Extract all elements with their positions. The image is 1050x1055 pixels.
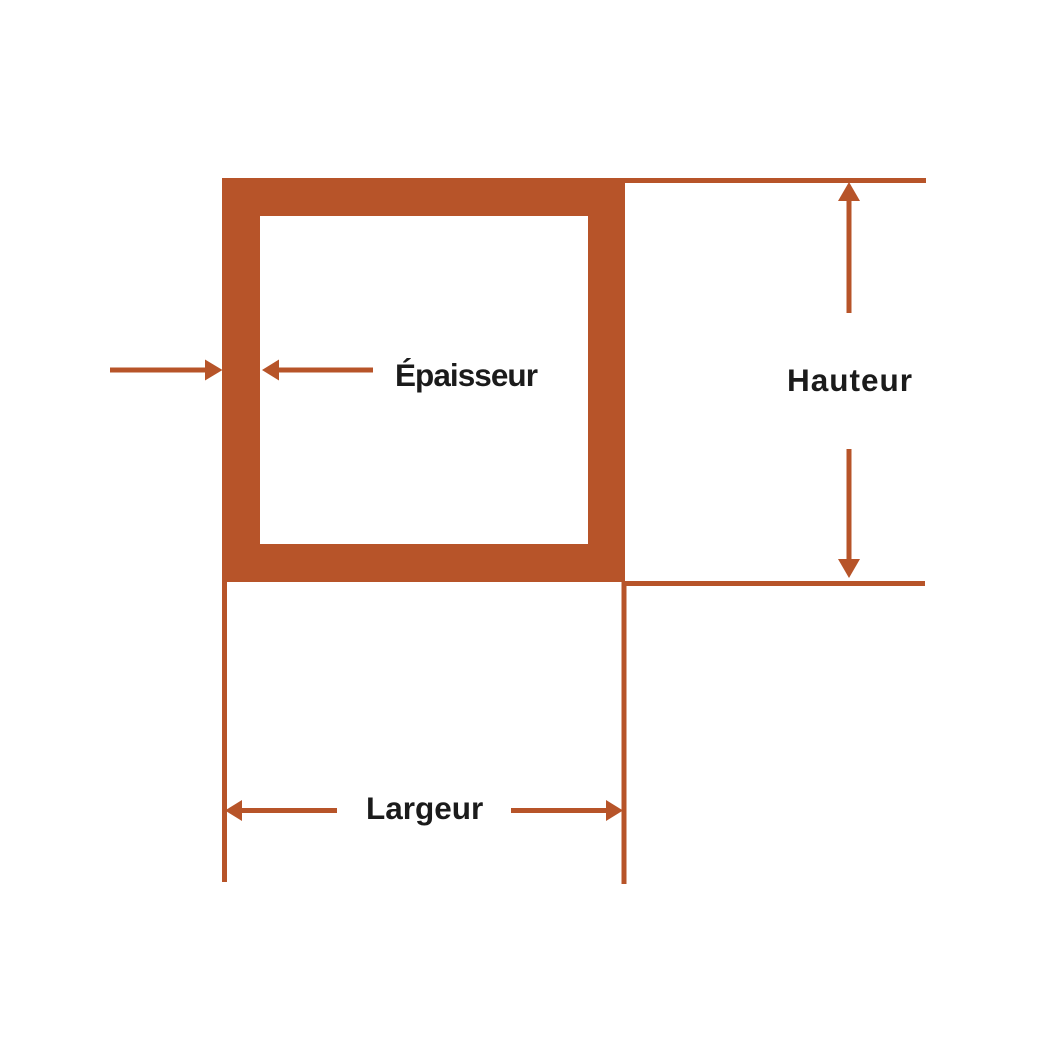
svg-text:Hauteur: Hauteur xyxy=(787,362,913,398)
svg-text:Épaisseur: Épaisseur xyxy=(395,357,538,393)
svg-text:Largeur: Largeur xyxy=(366,790,483,826)
